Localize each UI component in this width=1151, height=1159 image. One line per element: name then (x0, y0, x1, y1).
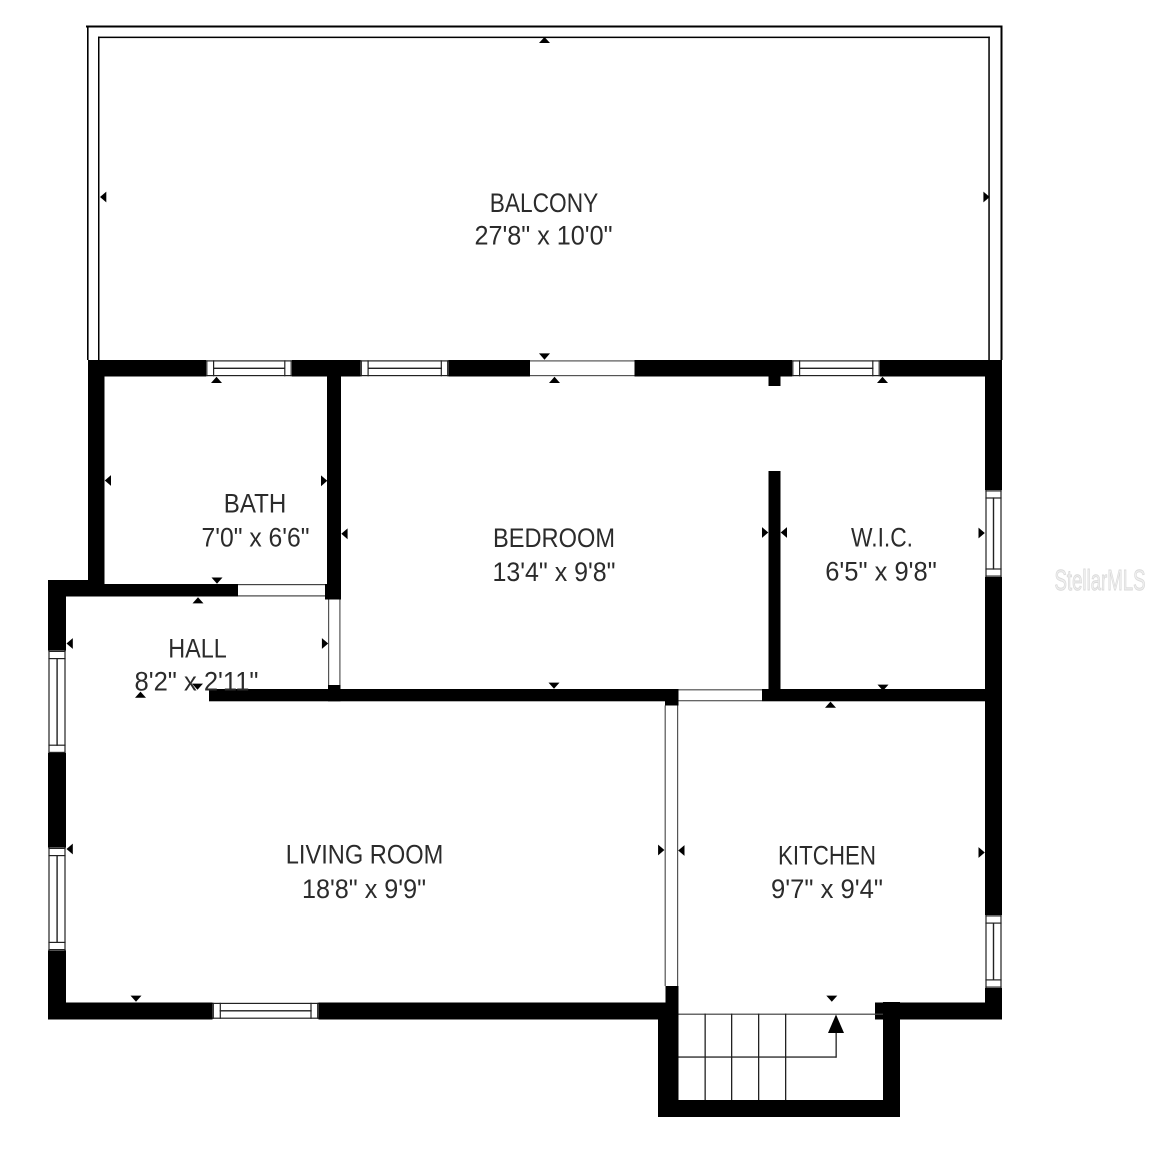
svg-text:13'4" x 9'8": 13'4" x 9'8" (493, 557, 616, 587)
svg-text:7'0" x 6'6": 7'0" x 6'6" (202, 523, 310, 553)
svg-text:HALL: HALL (168, 634, 227, 664)
svg-text:27'8" x 10'0": 27'8" x 10'0" (475, 221, 613, 251)
svg-text:KITCHEN: KITCHEN (778, 841, 876, 871)
svg-text:8'2" x 2'11": 8'2" x 2'11" (135, 667, 259, 697)
svg-text:W.I.C.: W.I.C. (851, 523, 913, 553)
svg-text:LIVING ROOM: LIVING ROOM (286, 840, 444, 870)
svg-text:6'5" x 9'8": 6'5" x 9'8" (825, 557, 937, 587)
svg-text:18'8" x 9'9": 18'8" x 9'9" (302, 874, 426, 904)
svg-text:BALCONY: BALCONY (490, 188, 599, 218)
svg-text:StellarMLS: StellarMLS (1055, 565, 1146, 597)
svg-text:9'7" x 9'4": 9'7" x 9'4" (771, 874, 883, 904)
svg-text:BEDROOM: BEDROOM (493, 523, 615, 553)
svg-text:BATH: BATH (224, 489, 287, 519)
